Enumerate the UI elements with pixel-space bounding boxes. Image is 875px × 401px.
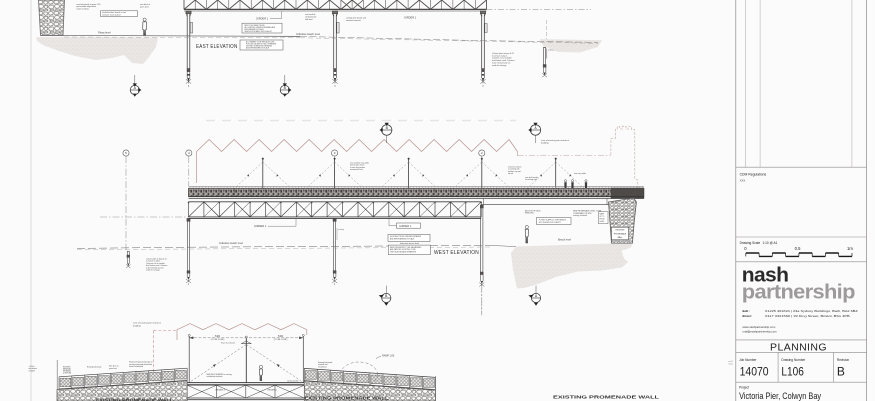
svg-text:GIRDER 1: GIRDER 1 <box>256 16 269 20</box>
svg-text:5400: 5400 <box>278 336 284 338</box>
svg-text:EXISTING PROMENADE WALL: EXISTING PROMENADE WALL <box>96 398 173 401</box>
svg-text:aside for salvage.: aside for salvage. <box>492 64 507 67</box>
svg-text:Project: Project <box>739 385 749 389</box>
svg-text:steelwork retained: steelwork retained <box>346 19 361 22</box>
svg-text:Indicative beach level: Indicative beach level <box>400 242 420 245</box>
svg-text:EAST ELEVATION: EAST ELEVATION <box>196 44 238 50</box>
svg-text:B: B <box>837 364 845 378</box>
svg-text:Indicative beach level: Indicative beach level <box>296 33 320 36</box>
svg-text:match existing: match existing <box>77 8 89 11</box>
svg-text:UP TO: UP TO <box>600 216 606 218</box>
svg-text:existing: existing <box>338 228 344 231</box>
svg-text:partnership: partnership <box>742 282 855 304</box>
svg-text:01225 461634 | 23a Sydney: 01225 461634 | 23a Sydney Buildings, Bat… <box>765 309 858 313</box>
svg-text:Revision: Revision <box>837 358 849 362</box>
svg-text:aside for salvage.: aside for salvage. <box>146 270 161 272</box>
svg-text:GRIT BLASTED AND REPAINTED: GRIT BLASTED AND REPAINTED <box>390 251 417 254</box>
svg-text:REMOVED: REMOVED <box>525 213 534 215</box>
svg-text:notes: notes <box>729 363 733 366</box>
svg-text:1:10 @ A1: 1:10 @ A1 <box>763 241 778 245</box>
svg-text:NOT SHOWN FOR CLARITY: NOT SHOWN FOR CLARITY <box>539 221 562 224</box>
svg-text:0117 3321560 | 33 King Str: 0117 3321560 | 33 King Street, Bristol, … <box>765 314 850 318</box>
svg-text:Beach level: Beach level <box>558 238 571 241</box>
svg-text:AND REFURBISHED IN PLACE: AND REFURBISHED IN PLACE <box>390 238 415 241</box>
svg-text:14070: 14070 <box>740 364 769 378</box>
svg-text:Job Number: Job Number <box>739 358 757 362</box>
svg-text:prom level: prom level <box>140 5 149 8</box>
svg-text:1m: 1m <box>847 246 853 251</box>
svg-text:prom level: prom level <box>109 367 117 370</box>
svg-text:(TO BE CONF): (TO BE CONF) <box>211 339 225 341</box>
svg-text:Victoria Pier, Colwyn Bay: Victoria Pier, Colwyn Bay <box>739 391 821 401</box>
svg-text:Existing balustrade: Existing balustrade <box>87 365 101 368</box>
svg-text:www.nashpartnership.com: www.nashpartnership.com <box>743 325 776 329</box>
svg-text:XXX: XXX <box>740 179 746 183</box>
svg-text:tensioned on site: tensioned on site <box>350 168 363 171</box>
svg-text:(TO BE CONF): (TO BE CONF) <box>274 339 288 341</box>
svg-text:mail@nashpartnership.com: mail@nashpartnership.com <box>743 330 778 334</box>
svg-text:Line of existing pier entrance: Line of existing pier entrance <box>133 322 162 325</box>
svg-text:Plaza level datum: Plaza level datum <box>221 341 236 344</box>
svg-text:WALL: WALL <box>617 236 622 239</box>
svg-text:L106: L106 <box>781 364 804 378</box>
svg-text:new stay cables: new stay cables <box>574 172 586 175</box>
svg-text:infill steel: infill steel <box>305 18 313 21</box>
svg-text:EXISTING PROMENADE WALL: EXISTING PROMENADE WALL <box>553 395 659 400</box>
svg-text:5400: 5400 <box>215 336 221 338</box>
svg-text:EXISTING PROMENADE WALL: EXISTING PROMENADE WALL <box>305 396 389 401</box>
svg-text:refurbished: refurbished <box>318 365 327 368</box>
svg-text:PROM: PROM <box>600 219 605 221</box>
svg-text:steelwork shown dashed: steelwork shown dashed <box>102 13 121 16</box>
svg-text:GIRDER 1: GIRDER 1 <box>399 224 412 228</box>
svg-text:building: building <box>133 325 141 327</box>
svg-text:Indicative beach level: Indicative beach level <box>219 242 243 245</box>
svg-text:on existing steel: on existing steel <box>525 178 538 181</box>
svg-text:Drawing Number: Drawing Number <box>781 358 806 362</box>
svg-text:0.5: 0.5 <box>795 246 801 251</box>
svg-text:PROMENADE: PROMENADE <box>614 232 627 235</box>
svg-text:GIRDER 1: GIRDER 1 <box>404 16 417 20</box>
svg-text:GIRDER 1: GIRDER 1 <box>254 224 267 228</box>
svg-text:FOR LIKE UNLESS NOTED OTHERWIS: FOR LIKE UNLESS NOTED OTHERWISE <box>246 43 276 45</box>
svg-text:CDM Regulations: CDM Regulations <box>740 173 767 177</box>
svg-text:frames refurbished: frames refurbished <box>129 365 143 368</box>
svg-text:GIRDER 4: GIRDER 4 <box>215 390 225 392</box>
svg-text:WEST ELEVATION: WEST ELEVATION <box>434 250 479 256</box>
svg-text:existing steelwork: existing steelwork <box>573 214 587 217</box>
svg-text:GIRDER 2: GIRDER 2 <box>267 390 277 392</box>
svg-text:LEVEL: LEVEL <box>600 221 605 223</box>
svg-text:RAMP 1:80: RAMP 1:80 <box>382 355 395 358</box>
svg-text:Bristol :: Bristol : <box>743 314 753 318</box>
svg-text:EXISTING: EXISTING <box>616 230 625 232</box>
svg-text:building: building <box>541 143 549 145</box>
svg-text:& REFURB: & REFURB <box>63 372 71 374</box>
svg-text:Drawing Scale: Drawing Scale <box>740 241 761 245</box>
svg-text:Line of existing pier entrance: Line of existing pier entrance <box>541 139 570 142</box>
svg-text:Bath :: Bath : <box>743 309 750 313</box>
svg-text:refurbished steelwork: refurbished steelwork <box>207 375 223 378</box>
svg-text:PLANNING: PLANNING <box>770 341 827 353</box>
svg-text:ref. AOD: ref. AOD <box>29 369 36 372</box>
svg-text:EXISTING: EXISTING <box>63 366 71 368</box>
svg-text:Plaza level: Plaza level <box>98 31 111 35</box>
svg-text:top rail: top rail <box>508 172 514 175</box>
